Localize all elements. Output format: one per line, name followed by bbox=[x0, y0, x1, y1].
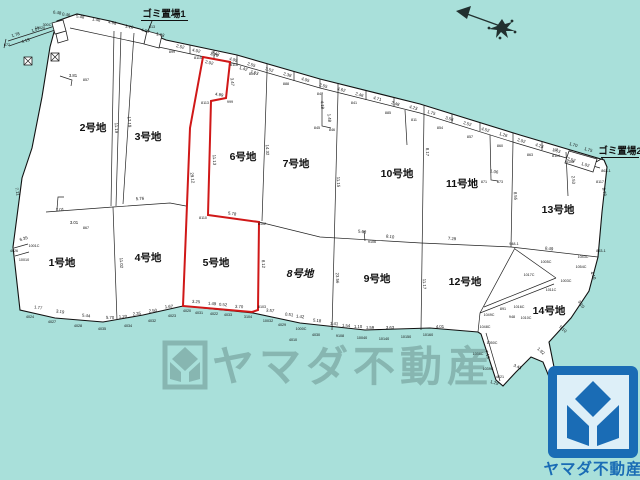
point-label: 4023 bbox=[168, 314, 176, 318]
point-label: 847 bbox=[317, 92, 323, 96]
point-label: 4010 bbox=[289, 338, 297, 342]
dimension-label: 11.19 bbox=[114, 123, 120, 134]
dimension-label: 2.50 bbox=[148, 308, 157, 314]
point-label: 672 bbox=[4, 43, 10, 47]
point-label: 867 bbox=[83, 226, 89, 230]
dimension-label: 1.48 bbox=[327, 113, 333, 122]
dimension-label: 8.49 bbox=[545, 246, 554, 252]
point-label: 811 bbox=[411, 118, 417, 122]
dimension-label: 3.57 bbox=[266, 308, 275, 314]
point-label: 891 bbox=[500, 307, 506, 311]
dimension-label: 3.63 bbox=[386, 325, 395, 330]
dimension-label: 1.41 bbox=[330, 321, 339, 327]
lot-label-7号地: 7号地 bbox=[283, 157, 310, 170]
dimension-label: 23.56 bbox=[335, 272, 340, 284]
lot-label-8号地: 8号地 bbox=[287, 267, 315, 280]
lot-label-14号地: 14号地 bbox=[533, 304, 566, 317]
point-label: 47 bbox=[554, 148, 558, 152]
dimension-label: 3.81 bbox=[69, 73, 78, 78]
point-label: 8117 bbox=[596, 180, 604, 184]
point-label: 846 bbox=[329, 128, 335, 132]
point-label: 10150 bbox=[401, 335, 411, 339]
point-label: 899 bbox=[169, 50, 175, 54]
point-label: 888 bbox=[283, 82, 289, 86]
logo-text: ヤマダ不動産 bbox=[543, 459, 640, 478]
lot-label-3号地: 3号地 bbox=[135, 130, 162, 143]
dimension-label: 1.54 bbox=[342, 323, 351, 329]
garbage-area-1-text: ゴミ置場1 bbox=[142, 8, 186, 20]
point-label: 841 bbox=[351, 101, 357, 105]
point-label: 9108 bbox=[336, 334, 344, 338]
point-label: 854 bbox=[437, 126, 443, 130]
point-label: 10140 bbox=[379, 337, 389, 341]
point-label: 8115 bbox=[194, 56, 202, 60]
point-label: 8103 bbox=[258, 305, 266, 309]
dimension-label: 7.29 bbox=[448, 236, 457, 241]
dimension-label: 2.35 bbox=[132, 311, 141, 317]
dimension-label: 3.70 bbox=[235, 304, 244, 310]
point-label: 863-1 bbox=[601, 169, 610, 173]
point-label: 4026 bbox=[10, 249, 18, 253]
dimension-label: 11.02 bbox=[119, 258, 125, 269]
point-label: 1000C bbox=[296, 327, 307, 331]
dimension-label: 8.01 bbox=[56, 207, 65, 212]
dimension-label: 17.19 bbox=[127, 116, 133, 128]
point-label: 4031 bbox=[195, 311, 203, 315]
lot-label-4号地: 4号地 bbox=[135, 251, 162, 264]
point-label: 1016C bbox=[514, 305, 525, 309]
point-label: 857 bbox=[467, 135, 473, 139]
lot-label-12号地: 12号地 bbox=[449, 275, 482, 288]
point-label: 8116 bbox=[230, 63, 238, 67]
dimension-label: 11.17 bbox=[422, 279, 427, 290]
point-label: 3104 bbox=[244, 315, 252, 319]
benchmark-symbol-1 bbox=[24, 57, 32, 65]
point-label: 804 bbox=[249, 72, 255, 76]
lot-label-1号地: 1号地 bbox=[49, 256, 76, 269]
dimension-label: 8.55 bbox=[513, 192, 518, 201]
lot-label-6号地: 6号地 bbox=[230, 150, 257, 163]
point-label: 8110 bbox=[199, 216, 207, 220]
point-label: 948-1 bbox=[509, 242, 518, 246]
watermark-text: ヤマダ不動産 bbox=[212, 343, 494, 390]
dimension-label: 1.59 bbox=[366, 325, 375, 330]
point-label: 4021 bbox=[496, 375, 504, 379]
point-label: 10020 bbox=[35, 26, 45, 30]
dimension-label: 5.76 bbox=[136, 196, 145, 201]
point-label: 8108 bbox=[566, 160, 574, 164]
point-label: 948 bbox=[509, 315, 515, 319]
dimension-label: 3.25 bbox=[192, 299, 201, 305]
point-label: 10160 bbox=[423, 333, 433, 337]
point-label: 845 bbox=[314, 126, 320, 130]
site-plan-page: 1.784.131.076.480.465.481.464.681.104.09… bbox=[0, 0, 640, 480]
point-label: 885 bbox=[385, 111, 391, 115]
point-label: 1005C bbox=[541, 260, 552, 264]
point-label: 1010C bbox=[521, 316, 532, 320]
point-label: 1054C bbox=[576, 265, 587, 269]
point-label: 1003C bbox=[561, 279, 572, 283]
dimension-label: 0.52 bbox=[219, 302, 228, 308]
dimension-label: 1.42 bbox=[296, 314, 305, 320]
benchmark-symbol-2 bbox=[51, 53, 59, 61]
point-label: 4020 bbox=[183, 309, 191, 313]
dimension-label: 2.53 bbox=[571, 175, 577, 184]
point-label: 4034 bbox=[124, 324, 132, 328]
point-label: 873 bbox=[497, 180, 503, 184]
dimension-label: 1.49 bbox=[208, 301, 217, 307]
point-label: 4030 bbox=[312, 333, 320, 337]
lot-label-2号地: 2号地 bbox=[80, 121, 107, 134]
garbage-area-2-text: ゴミ置場2 bbox=[598, 145, 640, 157]
point-label: 860 bbox=[497, 144, 503, 148]
realtor-logo: ヤマダ不動産 bbox=[543, 366, 640, 478]
point-label: 8113 bbox=[201, 101, 209, 105]
dimension-label: 4.01 bbox=[436, 324, 445, 329]
point-label: 8114 bbox=[552, 154, 560, 158]
point-label: 1011C bbox=[546, 288, 557, 292]
lot-label-5号地: 5号地 bbox=[203, 256, 230, 269]
point-label: 1043C bbox=[578, 255, 589, 259]
point-label: 1017C bbox=[524, 273, 535, 277]
watermark: ヤマダ不動産 bbox=[165, 343, 494, 390]
point-label: 4033 bbox=[224, 313, 232, 317]
point-label: 853-1 bbox=[596, 249, 605, 253]
dimension-label: 1.10 bbox=[354, 324, 363, 329]
lot-label-11号地: 11号地 bbox=[446, 177, 479, 190]
point-label: 4035 bbox=[98, 327, 106, 331]
dimension-label: 1.67 bbox=[165, 304, 174, 310]
point-label: 4028 bbox=[74, 324, 82, 328]
dimension-label: 11.13 bbox=[212, 155, 218, 166]
lot-label-9号地: 9号地 bbox=[364, 272, 391, 285]
point-label: 10040 bbox=[357, 336, 367, 340]
point-label: 8102 bbox=[258, 222, 266, 226]
point-label: 10032 bbox=[263, 319, 273, 323]
dimension-label: 14.32 bbox=[265, 144, 271, 156]
dimension-label: 11.15 bbox=[336, 177, 341, 188]
dimension-label: 4.18 bbox=[320, 100, 326, 109]
point-label: 857 bbox=[83, 78, 89, 82]
point-label: 863 bbox=[527, 153, 533, 157]
survey-map-svg: 1.784.131.076.480.465.481.464.681.104.09… bbox=[0, 0, 640, 480]
point-label: 10010 bbox=[19, 258, 29, 262]
dimension-label: 5.70 bbox=[106, 315, 115, 320]
point-label: 871 bbox=[481, 180, 487, 184]
point-label: 999 bbox=[227, 100, 233, 104]
lot-label-10号地: 10号地 bbox=[381, 167, 414, 180]
dimension-label: 8.12 bbox=[261, 260, 266, 269]
dimension-label: 5.18 bbox=[313, 318, 322, 324]
point-label: 4024 bbox=[26, 315, 34, 319]
point-label: 4027 bbox=[48, 320, 56, 324]
lot-label-13号地: 13号地 bbox=[542, 203, 575, 216]
dimension-label: 0.51 bbox=[285, 312, 294, 318]
point-label: 1001C bbox=[29, 244, 40, 248]
point-label: 4032 bbox=[148, 319, 156, 323]
dimension-label: 1.20 bbox=[119, 314, 128, 319]
point-label: 4022 bbox=[210, 312, 218, 316]
dimension-label: 8.17 bbox=[425, 148, 430, 157]
point-label: 4029 bbox=[278, 323, 286, 327]
point-label: 1048C bbox=[480, 325, 491, 329]
point-label: 9106 bbox=[368, 240, 376, 244]
dimension-label: 3.47 bbox=[230, 77, 236, 86]
dimension-label: 3.01 bbox=[70, 220, 79, 225]
point-label: 1049C bbox=[484, 313, 495, 317]
